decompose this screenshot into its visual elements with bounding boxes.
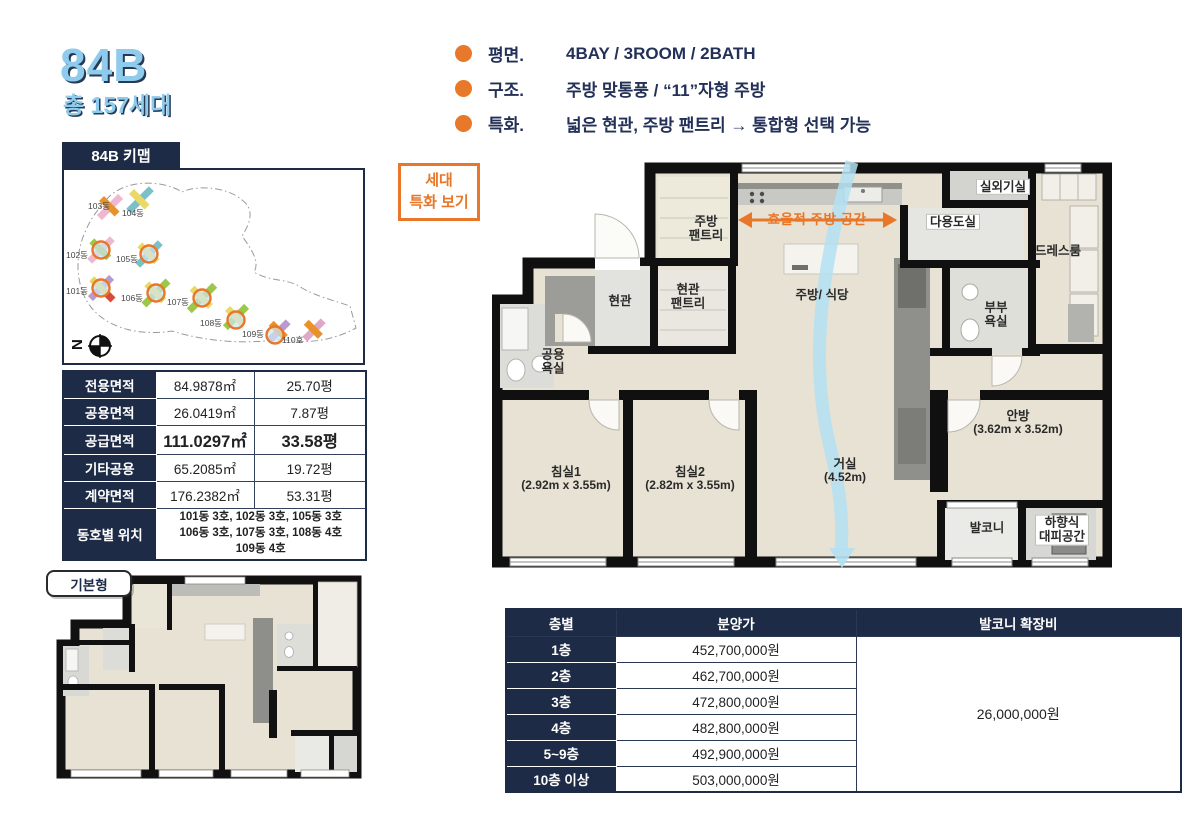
table-row: 1층 452,700,000원 26,000,000원	[506, 636, 1181, 662]
room-label-bedroom1: 침실1(2.92m x 3.55m)	[521, 465, 610, 493]
base-floorplan-thumbnail	[55, 572, 365, 784]
room-label-escape-space: 하향식대피공간	[1035, 515, 1089, 546]
table-row: 기타공용 65.2085㎡ 19.72평	[63, 454, 366, 481]
room-label-master-bedroom: 안방(3.62m x 3.52m)	[973, 409, 1062, 437]
price-cell: 452,700,000원	[616, 636, 856, 662]
kitchen-arrow-label: 효율적 주방 공간	[768, 212, 867, 228]
area-sqm: 111.0297㎡	[156, 425, 254, 454]
svg-text:110호: 110호	[282, 335, 304, 345]
room-label-outdoor-unit: 실외기실	[976, 179, 1030, 195]
table-row: 계약면적 176.2382㎡ 53.31평	[63, 481, 366, 508]
compass-icon: N	[69, 334, 112, 358]
price-cell: 462,700,000원	[616, 662, 856, 688]
building-103: 103동	[88, 188, 128, 225]
svg-text:106동: 106동	[121, 293, 143, 303]
svg-text:101동: 101동	[66, 286, 88, 296]
bullet-icon	[455, 115, 472, 132]
households-subtitle: 총 157세대	[63, 86, 171, 120]
feature-row: 평면. 4BAY / 3ROOM / 2BATH	[455, 36, 871, 71]
area-sqm: 176.2382㎡	[156, 481, 254, 508]
area-row-label: 공용면적	[63, 398, 156, 425]
feature-value: 주방 맞통풍 / “11”자형 주방	[566, 76, 765, 101]
area-table: 전용면적 84.9878㎡ 25.70평 공용면적 26.0419㎡ 7.87평…	[62, 370, 367, 561]
price-cell: 472,800,000원	[616, 688, 856, 714]
building-107: 107동	[167, 275, 223, 319]
feature-value: 4BAY / 3ROOM / 2BATH	[566, 44, 756, 64]
feature-label: 구조.	[488, 76, 550, 101]
area-pyeong: 25.70평	[254, 371, 366, 398]
area-pyeong: 53.31평	[254, 481, 366, 508]
room-label-kitchen-dining: 주방/ 식당	[796, 288, 849, 302]
svg-text:N: N	[69, 339, 86, 350]
room-label-dress-room: 드레스룸	[1035, 244, 1081, 258]
area-row-label: 전용면적	[63, 371, 156, 398]
floor-cell: 5~9층	[506, 740, 616, 766]
price-cell: 492,900,000원	[616, 740, 856, 766]
area-row-label: 계약면적	[63, 481, 156, 508]
brochure-page: 84B 총 157세대 평면. 4BAY / 3ROOM / 2BATH 구조.…	[0, 0, 1200, 840]
area-pyeong: 19.72평	[254, 454, 366, 481]
keymap-panel: 103동 104동 102동 105동 101동	[62, 168, 365, 365]
base-plan-label: 기본형	[46, 570, 132, 597]
room-label-couple-bath: 부부욕실	[984, 301, 1007, 330]
room-label-balcony: 발코니	[970, 521, 1005, 535]
area-row-label: 공급면적	[63, 425, 156, 454]
table-header-row: 층별 분양가 발코니 확장비	[506, 609, 1181, 636]
table-row: 공급면적 111.0297㎡ 33.58평	[63, 425, 366, 454]
feature-label: 평면.	[488, 41, 550, 66]
table-row: 공용면적 26.0419㎡ 7.87평	[63, 398, 366, 425]
feature-list: 평면. 4BAY / 3ROOM / 2BATH 구조. 주방 맞통풍 / “1…	[455, 36, 871, 141]
room-label-kitchen-pantry: 주방팬트리	[689, 215, 724, 244]
room-label-utility: 다용도실	[926, 214, 980, 230]
svg-text:104동: 104동	[122, 208, 144, 218]
floor-cell: 3층	[506, 688, 616, 714]
table-row: 동호별 위치 101동 3호, 102동 3호, 105동 3호 106동 3호…	[63, 508, 366, 560]
feature-row: 특화. 넓은 현관, 주방 팬트리 → 통합형 선택 가능	[455, 106, 871, 141]
location-values: 101동 3호, 102동 3호, 105동 3호 106동 3호, 107동 …	[156, 508, 366, 560]
floor-cell: 10층 이상	[506, 766, 616, 792]
area-sqm: 65.2085㎡	[156, 454, 254, 481]
building-104: 104동	[120, 180, 158, 218]
feature-label: 특화.	[488, 111, 550, 136]
floor-cell: 2층	[506, 662, 616, 688]
area-pyeong: 33.58평	[254, 425, 366, 454]
bullet-icon	[455, 80, 472, 97]
keymap-title-tab: 84B 키맵	[62, 142, 180, 168]
col-header-price: 분양가	[616, 609, 856, 636]
area-sqm: 26.0419㎡	[156, 398, 254, 425]
area-pyeong: 7.87평	[254, 398, 366, 425]
page-title: 84B	[60, 38, 147, 92]
floor-cell: 4층	[506, 714, 616, 740]
svg-text:108동: 108동	[200, 318, 222, 328]
floor-cell: 1층	[506, 636, 616, 662]
area-row-label: 기타공용	[63, 454, 156, 481]
location-line: 109동 4호	[157, 542, 366, 558]
room-label-entrance-pantry: 현관팬트리	[671, 283, 706, 312]
svg-text:107동: 107동	[167, 297, 189, 307]
price-table: 층별 분양가 발코니 확장비 1층 452,700,000원 26,000,00…	[505, 608, 1182, 793]
building-101: 101동	[66, 268, 124, 310]
unit-special-view-button[interactable]: 세대 특화 보기	[398, 163, 480, 221]
svg-text:103동: 103동	[88, 201, 110, 211]
bullet-icon	[455, 45, 472, 62]
svg-text:109동: 109동	[242, 329, 264, 339]
svg-text:102동: 102동	[66, 250, 88, 260]
keymap-svg: 103동 104동 102동 105동 101동	[64, 170, 363, 363]
price-cell: 503,000,000원	[616, 766, 856, 792]
price-cell: 482,800,000원	[616, 714, 856, 740]
building-102: 102동	[66, 229, 120, 269]
feature-value: 넓은 현관, 주방 팬트리 → 통합형 선택 가능	[566, 111, 871, 136]
location-line: 106동 3호, 107동 3호, 108동 4호	[157, 526, 366, 542]
location-line: 101동 3호, 102동 3호, 105동 3호	[157, 510, 366, 526]
room-label-living: 거실(4.52m)	[824, 457, 866, 485]
room-label-entrance: 현관	[608, 294, 631, 308]
feature-row: 구조. 주방 맞통풍 / “11”자형 주방	[455, 71, 871, 106]
svg-text:105동: 105동	[116, 254, 138, 264]
building-105: 105동	[116, 233, 168, 273]
balcony-cost-cell: 26,000,000원	[856, 636, 1181, 792]
room-label-common-bath: 공용욕실	[541, 348, 564, 377]
room-label-bedroom2: 침실2(2.82m x 3.55m)	[645, 465, 734, 493]
building-110: 110호	[282, 313, 330, 346]
col-header-balcony: 발코니 확장비	[856, 609, 1181, 636]
col-header-floor: 층별	[506, 609, 616, 636]
area-sqm: 84.9878㎡	[156, 371, 254, 398]
location-row-label: 동호별 위치	[63, 508, 156, 560]
table-row: 전용면적 84.9878㎡ 25.70평	[63, 371, 366, 398]
